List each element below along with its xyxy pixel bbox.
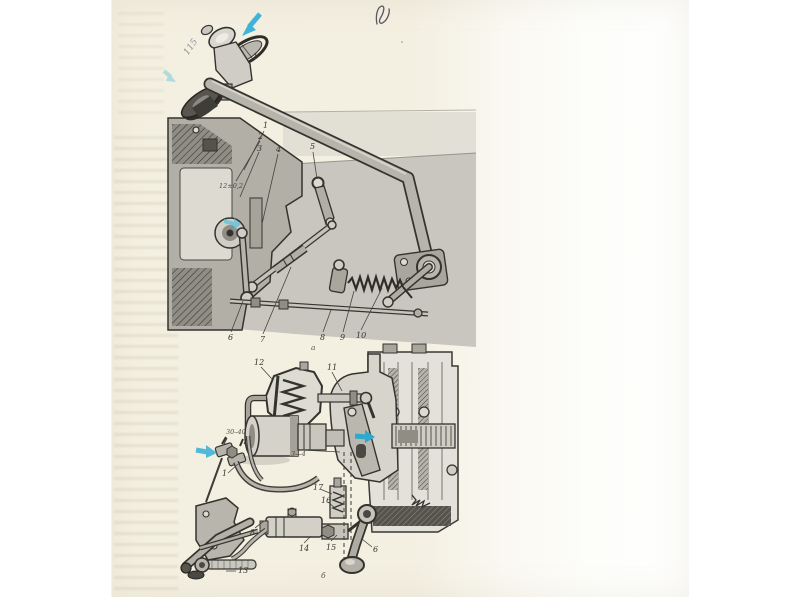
- callout-17: 17: [313, 484, 323, 492]
- callout-7: 7: [260, 336, 265, 344]
- view-label-a: а: [311, 344, 315, 352]
- callout-12: 12: [254, 359, 264, 367]
- callout-16: 16: [321, 497, 331, 505]
- callout-2: 2: [258, 133, 263, 141]
- callout-11: 11: [327, 364, 337, 372]
- dimension-30-40: 30–40: [226, 429, 246, 436]
- callout-lower-8: 8: [250, 529, 255, 537]
- pen-checkmark: [376, 6, 403, 43]
- callout-9: 9: [340, 334, 345, 342]
- scanned-page-canvas: 115 1 1 2 3 4 5 6 7 8 9 10 12±0,2 а 12 1…: [0, 0, 800, 600]
- callout-6: 6: [228, 334, 233, 342]
- highlight-arrow-icon: [196, 445, 217, 458]
- callout-1: 1: [263, 122, 268, 130]
- callout-lower-1: 1: [222, 470, 227, 478]
- callout-14: 14: [299, 545, 309, 553]
- view-label-b: б: [321, 572, 326, 580]
- callout-15: 15: [326, 544, 336, 552]
- gap-dimension-3-4: 3—4: [291, 451, 306, 458]
- callout-10: 10: [356, 332, 366, 340]
- callout-3: 3: [257, 145, 262, 153]
- callout-8: 8: [320, 334, 325, 342]
- figures-artwork: [0, 0, 800, 600]
- dimension-label: 12±0,2: [219, 183, 243, 190]
- callout-knob-1: 1: [253, 53, 258, 61]
- upper-figure-art: [164, 14, 476, 347]
- callout-lower-6: 6: [373, 546, 378, 554]
- callout-13: 13: [238, 567, 248, 575]
- callout-5: 5: [310, 143, 315, 151]
- highlight-arrow-icon: [164, 71, 176, 82]
- lower-figure-art: [181, 344, 458, 579]
- highlight-arrow-icon: [242, 14, 260, 36]
- callout-4: 4: [276, 146, 281, 154]
